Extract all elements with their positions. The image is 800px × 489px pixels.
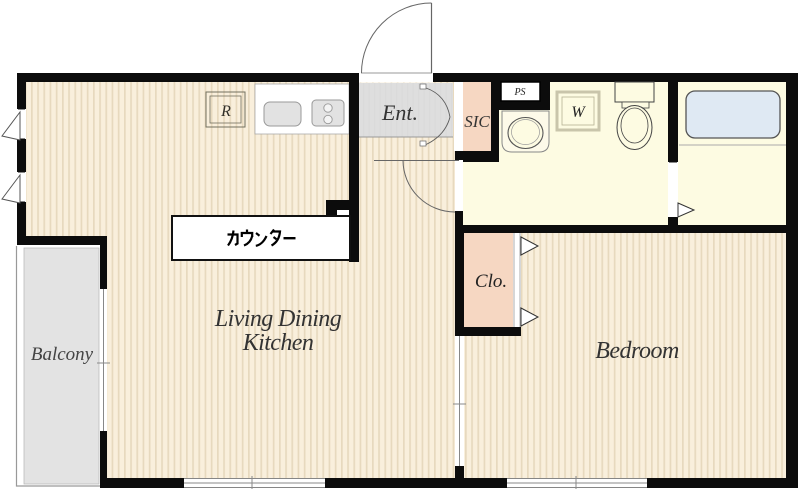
svg-text:SIC: SIC: [464, 112, 490, 131]
svg-text:PS: PS: [513, 87, 525, 98]
svg-text:Kitchen: Kitchen: [242, 330, 313, 356]
svg-text:Living Dining: Living Dining: [214, 306, 342, 332]
svg-text:Balcony: Balcony: [31, 344, 94, 365]
svg-text:W: W: [571, 104, 586, 121]
svg-text:R: R: [220, 103, 231, 120]
svg-text:Bedroom: Bedroom: [595, 338, 679, 364]
svg-text:Ent.: Ent.: [381, 100, 418, 125]
svg-text:Clo.: Clo.: [475, 271, 507, 292]
